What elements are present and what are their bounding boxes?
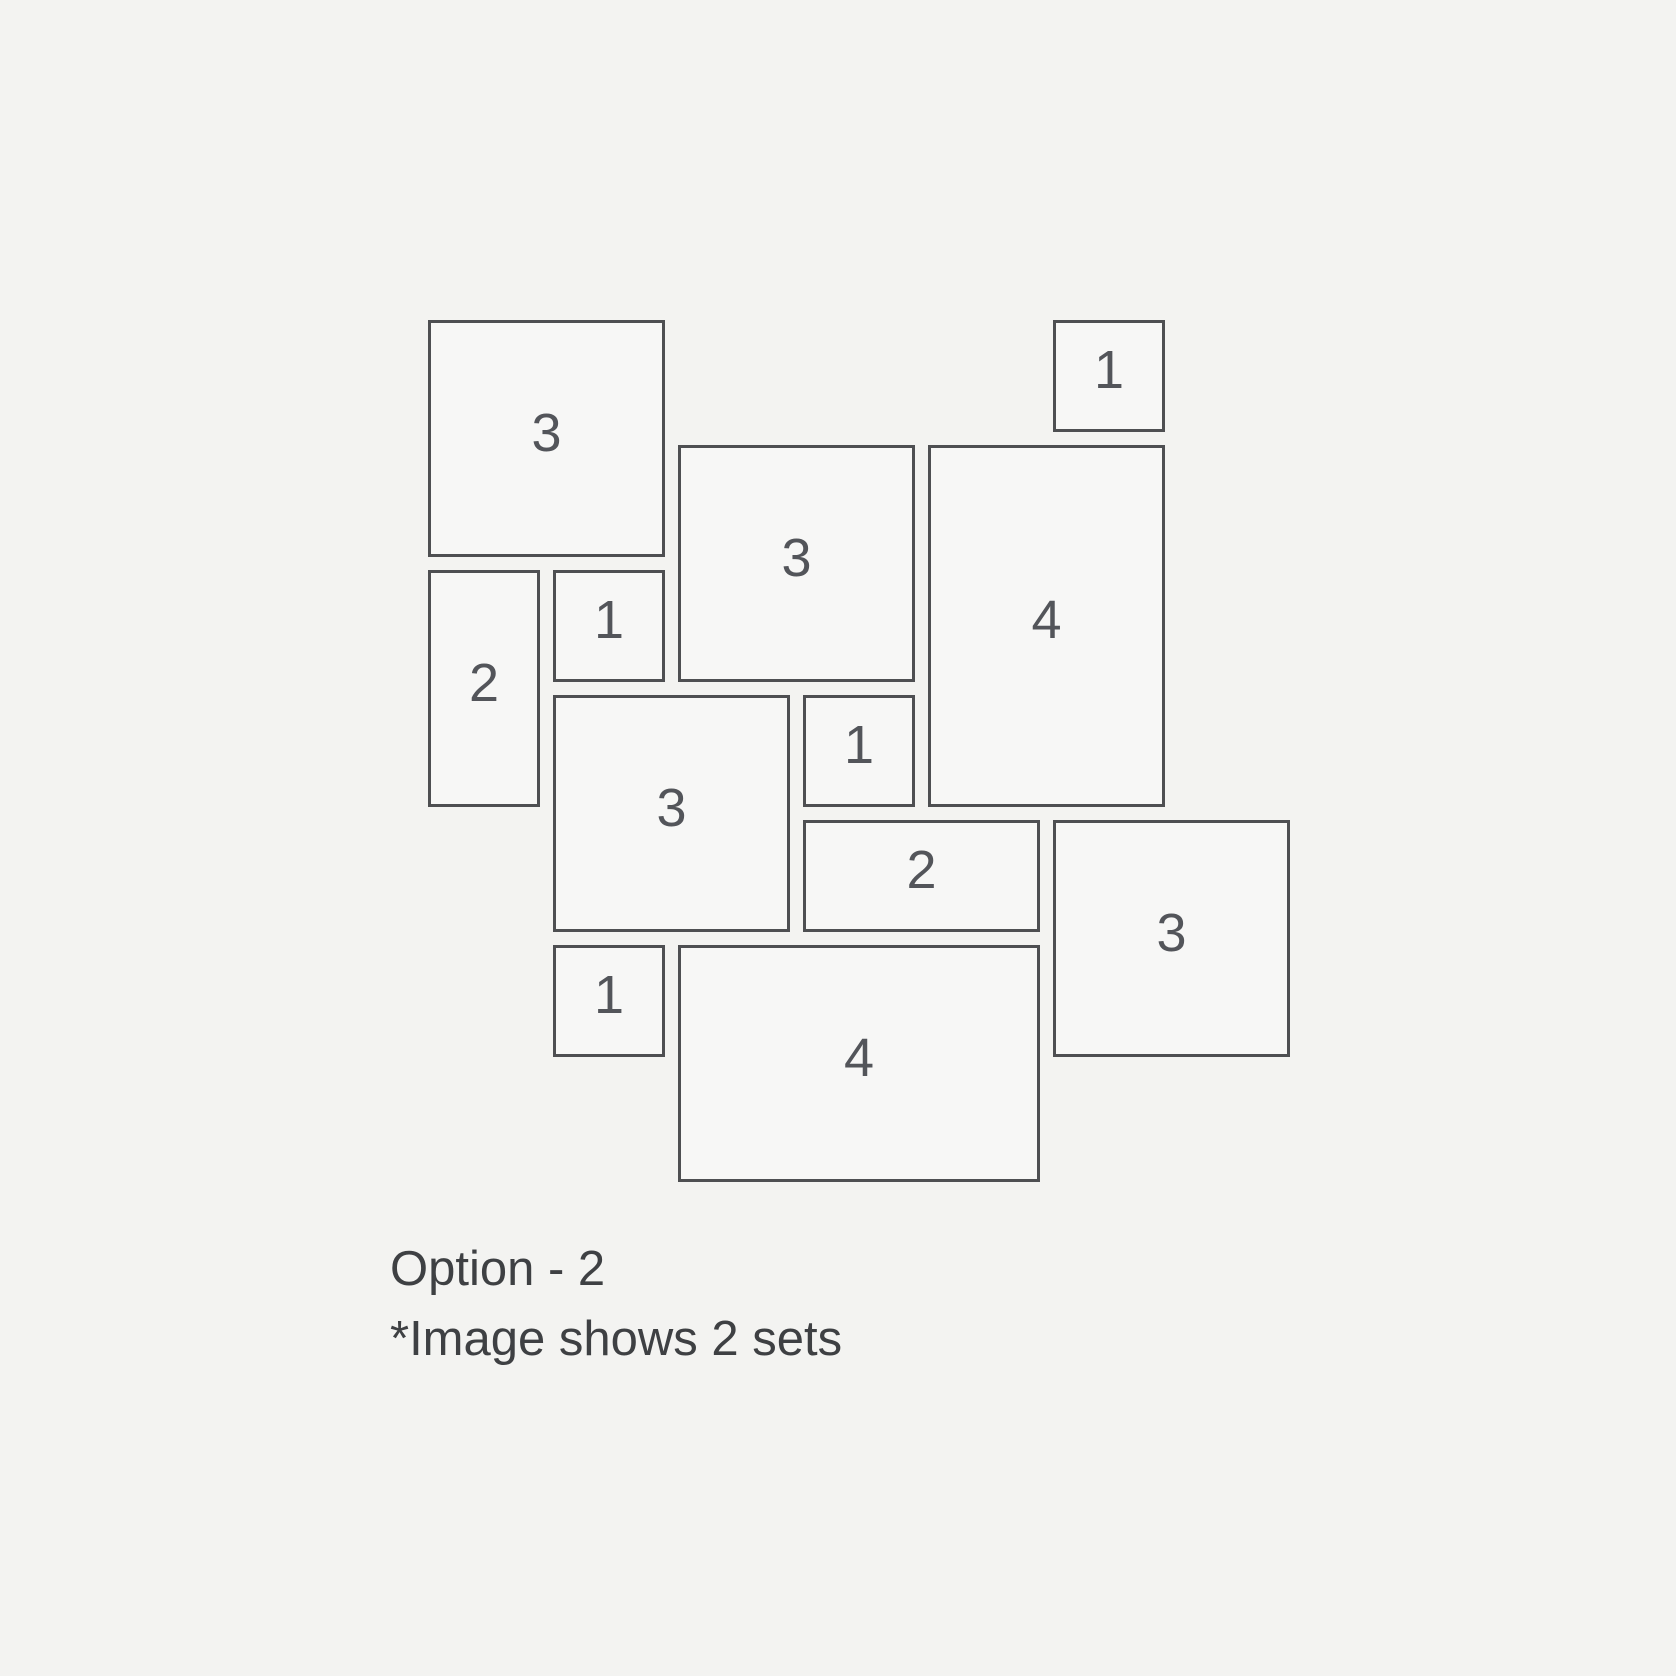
tile-number: 3 [1156,906,1186,960]
tile-number: 1 [844,718,874,772]
tile-3-upper-middle: 3 [678,445,915,682]
tile-3-bottom-right: 3 [1053,820,1290,1057]
caption-option-label: Option - 2 [390,1234,842,1304]
caption-note: *Image shows 2 sets [390,1304,842,1374]
tile-1-upper-left: 1 [553,570,665,682]
tile-3-center: 3 [553,695,790,932]
tile-4-bottom: 4 [678,945,1040,1182]
tile-2-middle: 2 [803,820,1040,932]
tile-1-bottom-left: 1 [553,945,665,1057]
tile-number: 3 [656,781,686,835]
caption: Option - 2 *Image shows 2 sets [390,1234,842,1374]
tile-1-top-right: 1 [1053,320,1165,432]
tile-2-left: 2 [428,570,540,807]
tile-number: 4 [844,1031,874,1085]
tile-number: 4 [1031,593,1061,647]
tile-number: 3 [531,406,561,460]
tile-number: 1 [594,968,624,1022]
tile-4-right: 4 [928,445,1165,807]
tile-number: 1 [1094,343,1124,397]
tile-number: 2 [906,843,936,897]
tile-number: 3 [781,531,811,585]
tile-number: 2 [469,656,499,710]
diagram-canvas: 313421312314 Option - 2 *Image shows 2 s… [0,0,1676,1676]
tile-3-top-left: 3 [428,320,665,557]
tile-number: 1 [594,593,624,647]
tile-1-center: 1 [803,695,915,807]
